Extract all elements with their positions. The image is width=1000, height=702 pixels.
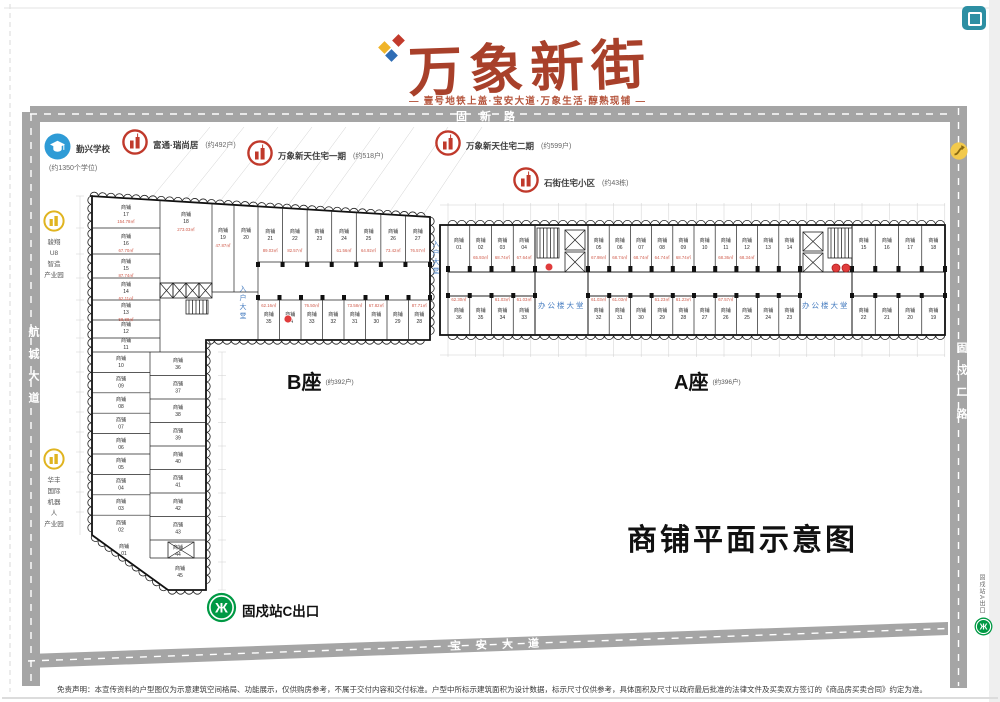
svg-text:商铺: 商铺 [339, 228, 349, 235]
svg-text:28: 28 [681, 315, 687, 321]
svg-text:Ж: Ж [979, 622, 988, 632]
svg-text:商铺: 商铺 [905, 307, 915, 314]
building-icon [513, 167, 539, 198]
svg-text:商铺: 商铺 [882, 237, 892, 244]
svg-text:45: 45 [177, 573, 183, 579]
svg-text:27: 27 [702, 315, 708, 321]
svg-text:商铺: 商铺 [657, 237, 667, 244]
svg-text:商铺: 商铺 [121, 321, 131, 328]
svg-text:14: 14 [787, 245, 793, 251]
svg-text:商铺: 商铺 [119, 543, 129, 550]
svg-text:26: 26 [390, 236, 396, 242]
svg-text:31: 31 [617, 315, 623, 321]
svg-text:12: 12 [123, 329, 129, 335]
svg-text:15: 15 [123, 266, 129, 272]
block-b-title: B座 (约392户) [287, 366, 354, 395]
poi-phase2-sub: (约599户) [541, 141, 571, 151]
poi-metro-c-label: 固戍站C出口 [242, 600, 319, 620]
svg-text:68.36㎡: 68.36㎡ [718, 254, 734, 260]
lobby-label-a2: 办公楼大堂 [802, 300, 850, 311]
svg-text:24: 24 [341, 236, 347, 242]
poi-phase2: 万象新天住宅二期 (约599户) [435, 130, 571, 161]
poi-shijie-sub: (约43栋) [602, 178, 628, 188]
svg-text:11: 11 [723, 245, 728, 251]
svg-text:04: 04 [118, 486, 124, 492]
svg-text:商铺: 商铺 [905, 237, 915, 244]
poi-school: 勤兴学校 [44, 133, 110, 165]
svg-text:67.70㎡: 67.70㎡ [118, 247, 134, 253]
svg-text:13: 13 [765, 245, 771, 251]
svg-text:商铺: 商铺 [476, 307, 486, 314]
poi-futong: 富通·瑞尚居 (约492户) [122, 129, 236, 160]
svg-text:商铺: 商铺 [678, 307, 688, 314]
svg-text:61.03㎡: 61.03㎡ [591, 296, 607, 302]
plan-title: 商铺平面示意图 [627, 515, 858, 559]
svg-text:15: 15 [861, 245, 867, 251]
svg-text:273.03㎡: 273.03㎡ [177, 226, 195, 232]
svg-text:商铺: 商铺 [265, 228, 275, 235]
svg-text:154.78㎡: 154.78㎡ [117, 218, 135, 224]
svg-text:17: 17 [907, 245, 913, 251]
svg-text:商铺: 商铺 [173, 451, 183, 458]
block-a-title: A座 (约396户) [674, 366, 741, 395]
svg-text:87.71㎡: 87.71㎡ [412, 302, 428, 308]
poi-metro-c: Ж 固戍站C出口 [206, 592, 319, 628]
svg-text:商铺: 商铺 [121, 337, 131, 344]
svg-text:商铺: 商铺 [393, 311, 403, 318]
poi-park2-line: 华丰 [48, 476, 61, 486]
svg-text:41: 41 [175, 482, 181, 488]
svg-text:67.82㎡: 67.82㎡ [369, 302, 385, 308]
svg-text:商铺: 商铺 [173, 474, 183, 481]
svg-text:61.03㎡: 61.03㎡ [517, 296, 533, 302]
svg-text:34: 34 [500, 315, 506, 321]
svg-text:87.74㎡: 87.74㎡ [118, 272, 134, 278]
svg-text:商铺: 商铺 [116, 376, 126, 383]
svg-text:商铺: 商铺 [454, 237, 464, 244]
svg-text:38: 38 [175, 412, 181, 418]
poi-park1-line: 产业园 [44, 271, 64, 281]
svg-text:42: 42 [175, 506, 181, 512]
svg-text:76.57㎡: 76.57㎡ [410, 247, 426, 253]
svg-text:商铺: 商铺 [742, 237, 752, 244]
svg-text:65.93㎡: 65.93㎡ [473, 254, 489, 260]
svg-text:商铺: 商铺 [859, 307, 869, 314]
svg-text:67.64㎡: 67.64㎡ [517, 254, 533, 260]
svg-text:68.74㎡: 68.74㎡ [633, 254, 649, 260]
svg-text:30: 30 [638, 315, 644, 321]
svg-text:商铺: 商铺 [928, 237, 938, 244]
lobby-label-b-east: 入户大堂 [430, 240, 440, 276]
marker-pair-a [842, 264, 850, 272]
svg-text:20: 20 [243, 235, 249, 241]
svg-text:09: 09 [681, 245, 687, 251]
poi-phase1: 万象新天住宅一期 (约518户) [247, 140, 383, 171]
school-icon [44, 133, 71, 165]
svg-text:67.98㎡: 67.98㎡ [591, 254, 607, 260]
svg-text:37: 37 [175, 388, 181, 394]
svg-text:20: 20 [907, 315, 913, 321]
svg-text:商铺: 商铺 [116, 457, 126, 464]
svg-text:商铺: 商铺 [594, 237, 604, 244]
svg-text:68.74㎡: 68.74㎡ [495, 254, 511, 260]
svg-text:商铺: 商铺 [116, 416, 126, 423]
svg-text:10: 10 [702, 245, 708, 251]
svg-text:07: 07 [638, 245, 644, 251]
svg-text:17: 17 [123, 212, 129, 218]
svg-text:商铺: 商铺 [678, 237, 688, 244]
poi-park2-line: 人 [51, 509, 58, 519]
svg-text:73.42㎡: 73.42㎡ [386, 247, 402, 253]
svg-text:13: 13 [123, 310, 129, 316]
svg-text:商铺: 商铺 [454, 307, 464, 314]
svg-text:61.03㎡: 61.03㎡ [612, 296, 628, 302]
svg-text:21: 21 [268, 236, 274, 242]
svg-text:64.92㎡: 64.92㎡ [361, 247, 377, 253]
svg-text:商铺: 商铺 [700, 307, 710, 314]
svg-text:商铺: 商铺 [307, 311, 317, 318]
svg-text:商铺: 商铺 [116, 396, 126, 403]
svg-text:23: 23 [317, 236, 323, 242]
marker-pair-a [832, 264, 840, 272]
svg-text:商铺: 商铺 [763, 307, 773, 314]
svg-text:商铺: 商铺 [497, 237, 507, 244]
svg-text:16: 16 [123, 241, 129, 247]
building-icon [435, 130, 461, 161]
svg-text:商铺: 商铺 [121, 281, 131, 288]
svg-text:商铺: 商铺 [181, 211, 191, 218]
svg-text:39: 39 [175, 435, 181, 441]
svg-text:68.74㎡: 68.74㎡ [676, 254, 692, 260]
svg-text:商铺: 商铺 [328, 311, 338, 318]
metro-icon: Ж [206, 592, 237, 628]
svg-text:25: 25 [744, 315, 750, 321]
svg-text:商铺: 商铺 [476, 237, 486, 244]
svg-text:62.11㎡: 62.11㎡ [119, 295, 134, 301]
svg-text:33: 33 [309, 319, 315, 325]
svg-text:02: 02 [118, 528, 124, 534]
svg-text:11: 11 [123, 345, 128, 351]
svg-text:27: 27 [415, 236, 421, 242]
svg-text:03: 03 [118, 506, 124, 512]
svg-text:76.50㎡: 76.50㎡ [304, 302, 320, 308]
svg-text:22: 22 [861, 315, 867, 321]
svg-text:29: 29 [395, 319, 401, 325]
road-left-label: 航城大道 [25, 326, 41, 414]
svg-text:商铺: 商铺 [928, 307, 938, 314]
poi-park2-line: 产业园 [44, 520, 64, 530]
svg-text:09: 09 [118, 384, 124, 390]
poi-park1-line: U8 [50, 249, 58, 259]
svg-text:商铺: 商铺 [388, 228, 398, 235]
svg-text:商铺: 商铺 [116, 437, 126, 444]
svg-text:67.57㎡: 67.57㎡ [718, 296, 734, 302]
svg-text:25: 25 [366, 236, 372, 242]
svg-text:61.56㎡: 61.56㎡ [336, 247, 352, 253]
svg-text:商铺: 商铺 [241, 227, 251, 234]
svg-text:68.74㎡: 68.74㎡ [612, 254, 628, 260]
svg-text:64.74㎡: 64.74㎡ [655, 254, 671, 260]
svg-text:商铺: 商铺 [615, 237, 625, 244]
svg-text:43: 43 [175, 529, 181, 535]
svg-text:12: 12 [744, 245, 750, 251]
svg-text:商铺: 商铺 [116, 355, 126, 362]
svg-text:47.87㎡: 47.87㎡ [215, 242, 231, 248]
svg-text:商铺: 商铺 [859, 237, 869, 244]
svg-text:商铺: 商铺 [497, 307, 507, 314]
poi-futong-sub: (约492户) [205, 140, 235, 150]
block-a-households: (约396户) [712, 376, 740, 386]
poi-school-sub: (约1350个学位) [49, 163, 97, 173]
svg-text:16: 16 [884, 245, 890, 251]
svg-text:61.23㎡: 61.23㎡ [676, 296, 692, 302]
svg-text:商铺: 商铺 [264, 311, 274, 318]
svg-text:商铺: 商铺 [314, 228, 324, 235]
svg-text:商铺: 商铺 [371, 311, 381, 318]
svg-text:18: 18 [931, 245, 937, 251]
road-right-label: 固戍二路 [953, 342, 969, 430]
svg-text:商铺: 商铺 [882, 307, 892, 314]
svg-text:04: 04 [521, 245, 527, 251]
poi-park1: 骏翔 U8 智造 产业园 [38, 210, 70, 281]
block-a-name: A座 [674, 366, 708, 395]
svg-text:06: 06 [617, 245, 623, 251]
svg-text:商铺: 商铺 [173, 521, 183, 528]
developer-logo [962, 6, 986, 30]
svg-text:10: 10 [118, 363, 124, 369]
svg-text:商铺: 商铺 [594, 307, 604, 314]
poi-phase1-sub: (约518户) [353, 151, 383, 161]
building-icon [247, 140, 273, 171]
svg-text:61.23㎡: 61.23㎡ [655, 296, 671, 302]
svg-text:08: 08 [659, 245, 665, 251]
svg-text:73.58㎡: 73.58㎡ [347, 302, 363, 308]
poi-metro-a-label: 固戍站A出口 [977, 574, 986, 614]
block-b-name: B座 [287, 366, 321, 395]
lobby-label-b: 入户大堂 [237, 285, 247, 321]
svg-text:35: 35 [478, 315, 484, 321]
svg-text:商铺: 商铺 [721, 237, 731, 244]
svg-text:商铺: 商铺 [519, 237, 529, 244]
svg-text:40: 40 [175, 459, 181, 465]
svg-text:26: 26 [723, 315, 729, 321]
brand-tagline: — 壹号地铁上盖·宝安大道·万象生活·醇熟现铺 — [409, 93, 646, 107]
svg-text:35: 35 [266, 319, 272, 325]
svg-text:30: 30 [373, 319, 379, 325]
svg-text:33: 33 [521, 315, 527, 321]
poi-phase1-label: 万象新天住宅一期 [278, 150, 346, 162]
svg-text:82.57㎡: 82.57㎡ [287, 247, 303, 253]
svg-text:08: 08 [118, 404, 124, 410]
svg-text:商铺: 商铺 [173, 380, 183, 387]
svg-text:商铺: 商铺 [173, 357, 183, 364]
svg-text:商铺: 商铺 [519, 307, 529, 314]
metro-icon: Ж [974, 617, 993, 641]
svg-text:商铺: 商铺 [121, 302, 131, 309]
svg-text:03: 03 [500, 245, 506, 251]
svg-text:商铺: 商铺 [116, 478, 126, 485]
poi-park2-line: 机器 [48, 498, 61, 508]
svg-text:24: 24 [765, 315, 771, 321]
svg-text:32: 32 [596, 315, 602, 321]
svg-text:商铺: 商铺 [364, 228, 374, 235]
svg-text:商铺: 商铺 [175, 565, 185, 572]
block-b-households: (约392户) [325, 376, 353, 386]
poi-park1-line: 骏翔 [48, 238, 61, 248]
svg-text:商铺: 商铺 [173, 427, 183, 434]
svg-text:01: 01 [121, 551, 127, 557]
svg-text:商铺: 商铺 [121, 204, 131, 211]
building-icon [122, 129, 148, 160]
interchange-icon [949, 141, 969, 166]
svg-text:07: 07 [118, 424, 124, 430]
svg-text:36: 36 [175, 365, 181, 371]
svg-text:商铺: 商铺 [742, 307, 752, 314]
poi-school-label: 勤兴学校 [76, 143, 110, 155]
poi-phase2-label: 万象新天住宅二期 [466, 140, 534, 152]
svg-text:商铺: 商铺 [784, 307, 794, 314]
svg-text:89.03㎡: 89.03㎡ [263, 247, 279, 253]
svg-text:商铺: 商铺 [721, 307, 731, 314]
marker-dot-b [284, 315, 292, 323]
flyer-page: 商铺17154.78㎡商铺1667.70㎡商铺1587.74㎡商铺1462.11… [0, 0, 1000, 702]
svg-text:32: 32 [330, 319, 336, 325]
svg-text:29: 29 [659, 315, 665, 321]
svg-text:06: 06 [118, 445, 124, 451]
svg-text:18: 18 [183, 219, 189, 225]
svg-text:19: 19 [931, 315, 937, 321]
svg-text:Ж: Ж [214, 600, 228, 616]
poi-park2-line: 国际 [48, 487, 61, 497]
svg-text:商铺: 商铺 [116, 520, 126, 527]
disclaimer-text: 免责声明：本宣传资料的户型图仅为示意建筑空间格局、功能展示，仅供购房参考，不属于… [57, 684, 927, 695]
poi-futong-label: 富通·瑞尚居 [153, 139, 198, 151]
svg-text:05: 05 [118, 465, 124, 471]
svg-text:商铺: 商铺 [218, 227, 228, 234]
svg-text:05: 05 [596, 245, 602, 251]
svg-text:商铺: 商铺 [121, 258, 131, 265]
svg-text:商铺: 商铺 [116, 498, 126, 505]
svg-text:61.03㎡: 61.03㎡ [495, 296, 511, 302]
svg-text:19: 19 [220, 235, 226, 241]
marker-dot-a [546, 264, 553, 271]
road-top-label: 固新路 [456, 108, 528, 124]
svg-text:商铺: 商铺 [121, 233, 131, 240]
svg-text:22: 22 [292, 236, 298, 242]
svg-text:62.30㎡: 62.30㎡ [451, 296, 467, 302]
svg-text:商铺: 商铺 [173, 498, 183, 505]
svg-text:21: 21 [884, 315, 890, 321]
svg-text:28: 28 [416, 319, 422, 325]
svg-text:商铺: 商铺 [615, 307, 625, 314]
svg-text:36: 36 [456, 315, 462, 321]
poi-park1-line: 智造 [48, 260, 61, 270]
svg-text:商铺: 商铺 [700, 237, 710, 244]
poi-park2: 华丰 国际 机器 人 产业园 [38, 448, 70, 530]
svg-text:23: 23 [787, 315, 793, 321]
svg-text:商铺: 商铺 [414, 311, 424, 318]
svg-text:62.16㎡: 62.16㎡ [261, 302, 277, 308]
svg-text:68.34㎡: 68.34㎡ [739, 254, 755, 260]
svg-text:商铺: 商铺 [636, 237, 646, 244]
poi-shijie: 石街住宅小区 (约43栋) [513, 167, 628, 198]
svg-text:商铺: 商铺 [657, 307, 667, 314]
svg-text:01: 01 [456, 245, 462, 251]
svg-text:商铺: 商铺 [173, 404, 183, 411]
svg-text:02: 02 [478, 245, 484, 251]
svg-text:14: 14 [123, 289, 129, 295]
industrial-park-icon [43, 448, 65, 475]
svg-text:商铺: 商铺 [784, 237, 794, 244]
lobby-label-a1: 办公楼大堂 [538, 300, 586, 311]
svg-text:商铺: 商铺 [290, 228, 300, 235]
svg-text:31: 31 [352, 319, 358, 325]
svg-text:商铺: 商铺 [636, 307, 646, 314]
svg-text:商铺: 商铺 [763, 237, 773, 244]
poi-shijie-label: 石街住宅小区 [544, 177, 595, 189]
industrial-park-icon [43, 210, 65, 237]
svg-text:商铺: 商铺 [350, 311, 360, 318]
svg-text:商铺: 商铺 [413, 228, 423, 235]
